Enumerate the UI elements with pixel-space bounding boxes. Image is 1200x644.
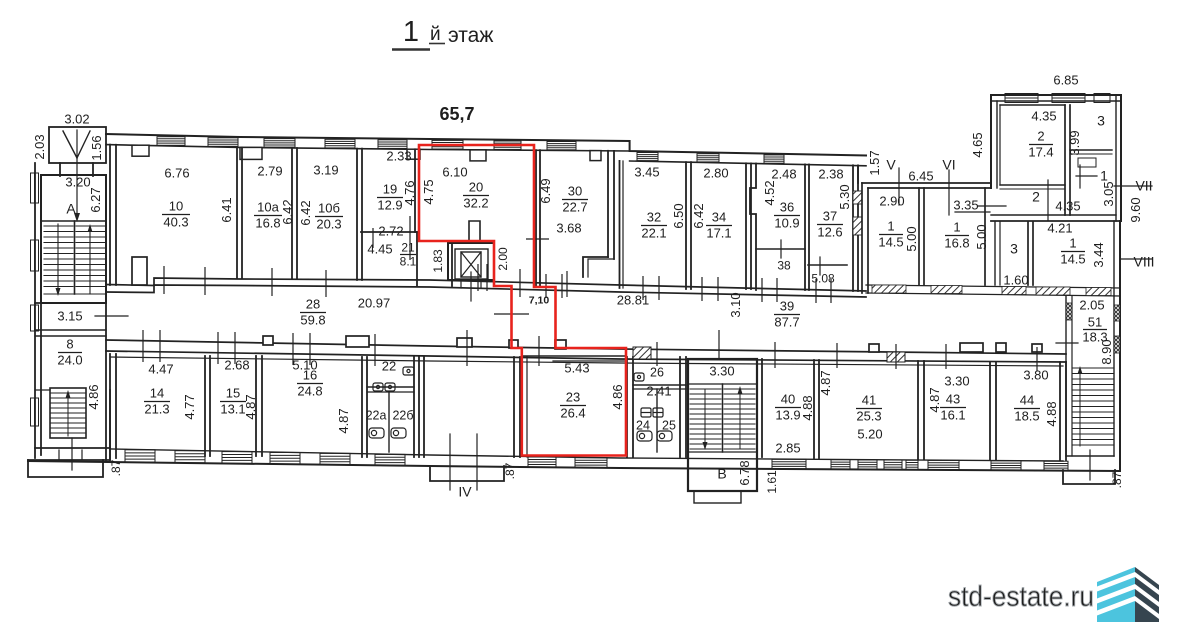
svg-text:.87: .87	[503, 462, 517, 479]
svg-text:6.42: 6.42	[298, 200, 313, 225]
svg-text:й: й	[430, 24, 441, 45]
svg-text:IV: IV	[458, 484, 472, 500]
svg-text:20.97: 20.97	[358, 296, 391, 311]
svg-text:1.61: 1.61	[765, 470, 779, 494]
svg-text:4.65: 4.65	[970, 132, 985, 157]
svg-text:6.45: 6.45	[908, 169, 933, 184]
svg-text:2.00: 2.00	[496, 247, 510, 271]
svg-text:2.38: 2.38	[818, 167, 843, 182]
svg-text:3.30: 3.30	[709, 364, 734, 379]
svg-text:24.8: 24.8	[297, 384, 322, 399]
svg-text:1: 1	[887, 219, 894, 234]
svg-text:3.68: 3.68	[556, 221, 581, 236]
svg-text:32.2: 32.2	[463, 196, 488, 211]
svg-text:2.41: 2.41	[646, 384, 671, 399]
svg-text:4.77: 4.77	[182, 394, 197, 419]
svg-text:28: 28	[306, 297, 320, 312]
svg-text:2.85: 2.85	[775, 441, 800, 456]
svg-text:этаж: этаж	[448, 24, 493, 47]
svg-text:65,7: 65,7	[439, 104, 474, 124]
svg-text:5.00: 5.00	[904, 226, 919, 251]
svg-text:37: 37	[823, 209, 837, 224]
svg-text:40: 40	[781, 392, 795, 407]
svg-text:32: 32	[647, 210, 661, 225]
svg-text:1.57: 1.57	[867, 150, 882, 175]
svg-text:21.3: 21.3	[144, 402, 169, 417]
svg-text:2.33: 2.33	[386, 149, 411, 164]
svg-text:4.35: 4.35	[1031, 109, 1056, 124]
svg-text:2.68: 2.68	[224, 358, 249, 373]
svg-text:1: 1	[1069, 236, 1076, 251]
svg-text:6.49: 6.49	[538, 178, 553, 203]
svg-text:25.3: 25.3	[856, 409, 881, 424]
svg-text:6.27: 6.27	[88, 187, 103, 212]
svg-text:6.76: 6.76	[164, 166, 189, 181]
svg-text:5.08: 5.08	[811, 272, 835, 286]
svg-text:4.86: 4.86	[86, 384, 101, 409]
svg-text:.87: .87	[109, 459, 123, 476]
svg-text:4.21: 4.21	[1047, 221, 1072, 236]
svg-text:14.5: 14.5	[878, 235, 903, 250]
svg-text:43: 43	[946, 392, 960, 407]
svg-text:3.80: 3.80	[1023, 368, 1048, 383]
svg-text:4.45: 4.45	[367, 242, 392, 257]
svg-text:6.50: 6.50	[671, 203, 686, 228]
svg-text:9.60: 9.60	[1128, 197, 1143, 222]
svg-text:1.56: 1.56	[89, 135, 104, 160]
svg-text:std-estate.ru: std-estate.ru	[948, 581, 1094, 613]
svg-text:5.00: 5.00	[974, 224, 989, 249]
svg-text:2: 2	[1037, 129, 1044, 144]
svg-text:22.7: 22.7	[562, 200, 587, 215]
svg-text:3.44: 3.44	[1091, 242, 1106, 267]
svg-text:6.10: 6.10	[442, 165, 467, 180]
svg-text:3.10: 3.10	[728, 292, 743, 317]
svg-text:24: 24	[636, 419, 650, 433]
svg-text:.87: .87	[1110, 471, 1124, 488]
svg-text:22a: 22a	[366, 409, 387, 423]
svg-text:10.9: 10.9	[774, 216, 799, 231]
svg-text:2.80: 2.80	[703, 166, 728, 181]
svg-text:14: 14	[150, 386, 164, 401]
svg-text:4.87: 4.87	[927, 387, 942, 412]
svg-text:5.10: 5.10	[292, 358, 317, 373]
svg-text:26.4: 26.4	[560, 406, 585, 421]
svg-text:38: 38	[777, 259, 791, 273]
svg-text:3: 3	[1097, 113, 1105, 129]
svg-text:VI: VI	[942, 157, 955, 173]
svg-text:16.8: 16.8	[944, 236, 969, 251]
svg-text:20: 20	[469, 180, 483, 195]
svg-text:8.90: 8.90	[1099, 339, 1114, 364]
svg-text:16.8: 16.8	[255, 216, 280, 231]
svg-text:3.35: 3.35	[953, 198, 978, 213]
svg-text:2.90: 2.90	[879, 194, 904, 209]
svg-text:3.45: 3.45	[634, 165, 659, 180]
svg-text:2.79: 2.79	[257, 164, 282, 179]
svg-text:19: 19	[383, 182, 397, 197]
svg-text:1: 1	[1100, 168, 1108, 184]
svg-text:3.02: 3.02	[64, 112, 89, 127]
svg-text:1: 1	[953, 220, 960, 235]
svg-text:4.75: 4.75	[421, 179, 436, 204]
svg-text:8.1: 8.1	[400, 255, 417, 269]
svg-text:4.87: 4.87	[243, 394, 258, 419]
svg-text:7,10: 7,10	[529, 295, 550, 307]
svg-text:51: 51	[1088, 315, 1102, 330]
svg-text:V: V	[886, 157, 896, 173]
svg-text:3.99: 3.99	[1067, 130, 1082, 155]
svg-text:B: B	[717, 466, 726, 482]
svg-text:17.4: 17.4	[1028, 145, 1053, 160]
svg-text:5.20: 5.20	[857, 427, 882, 442]
svg-text:4.86: 4.86	[610, 384, 625, 409]
svg-text:1.60: 1.60	[1003, 273, 1028, 288]
svg-text:10б: 10б	[318, 201, 340, 216]
svg-text:6.41: 6.41	[219, 197, 234, 222]
svg-text:14.5: 14.5	[1060, 252, 1085, 267]
svg-text:21: 21	[401, 241, 415, 255]
svg-text:4.87: 4.87	[336, 408, 351, 433]
svg-text:15: 15	[226, 386, 240, 401]
svg-text:22.1: 22.1	[641, 226, 666, 241]
svg-text:3.19: 3.19	[313, 163, 338, 178]
svg-text:24.0: 24.0	[57, 353, 82, 368]
svg-text:6.42: 6.42	[280, 199, 295, 224]
svg-text:2.05: 2.05	[1079, 298, 1104, 313]
svg-text:2: 2	[1032, 189, 1040, 205]
svg-text:2.48: 2.48	[771, 167, 796, 182]
svg-text:16.1: 16.1	[940, 408, 965, 423]
svg-text:6.78: 6.78	[737, 460, 752, 485]
svg-text:A: A	[66, 201, 76, 217]
svg-text:30: 30	[568, 184, 582, 199]
svg-text:3.30: 3.30	[944, 374, 969, 389]
svg-text:4.35: 4.35	[1055, 199, 1080, 214]
svg-text:44: 44	[1020, 393, 1034, 408]
svg-text:2.72: 2.72	[378, 224, 403, 239]
svg-text:6.85: 6.85	[1053, 73, 1078, 88]
svg-text:3.15: 3.15	[57, 309, 82, 324]
svg-text:10a: 10a	[257, 200, 279, 215]
svg-text:3.05: 3.05	[1101, 181, 1116, 206]
svg-text:18.5: 18.5	[1014, 409, 1039, 424]
svg-text:6.42: 6.42	[691, 203, 706, 228]
svg-text:VIII: VIII	[1133, 254, 1154, 270]
svg-text:1.83: 1.83	[431, 249, 445, 273]
svg-text:13.1: 13.1	[220, 402, 245, 417]
svg-text:23: 23	[566, 390, 580, 405]
svg-text:59.8: 59.8	[300, 313, 325, 328]
svg-text:41: 41	[862, 393, 876, 408]
svg-text:39: 39	[780, 299, 794, 314]
svg-text:1: 1	[403, 16, 419, 48]
svg-text:4.52: 4.52	[762, 180, 777, 205]
svg-text:34: 34	[712, 210, 726, 225]
svg-text:13.9: 13.9	[775, 408, 800, 423]
svg-text:VII: VII	[1135, 178, 1152, 194]
svg-text:4.76: 4.76	[402, 180, 417, 205]
svg-text:26: 26	[650, 366, 664, 380]
svg-text:3.20: 3.20	[65, 175, 90, 190]
svg-text:4.87: 4.87	[818, 370, 833, 395]
svg-text:10: 10	[169, 199, 183, 214]
svg-text:20.3: 20.3	[316, 217, 341, 232]
svg-text:22: 22	[382, 359, 396, 374]
svg-text:3: 3	[1010, 241, 1018, 257]
svg-text:5.30: 5.30	[837, 184, 852, 209]
svg-text:8: 8	[66, 337, 73, 352]
svg-text:12.6: 12.6	[817, 225, 842, 240]
svg-text:36: 36	[780, 200, 794, 215]
svg-text:17.1: 17.1	[706, 226, 731, 241]
svg-text:4.47: 4.47	[148, 362, 173, 377]
svg-text:12.9: 12.9	[377, 198, 402, 213]
svg-text:2.03: 2.03	[32, 134, 47, 159]
svg-text:87.7: 87.7	[774, 315, 799, 330]
svg-text:22б: 22б	[392, 409, 413, 423]
svg-text:28.81: 28.81	[617, 293, 650, 308]
svg-text:4.88: 4.88	[800, 395, 815, 420]
svg-text:25: 25	[662, 419, 676, 433]
svg-text:4.88: 4.88	[1044, 401, 1059, 426]
svg-text:5.43: 5.43	[564, 361, 589, 376]
svg-text:40.3: 40.3	[163, 215, 188, 230]
